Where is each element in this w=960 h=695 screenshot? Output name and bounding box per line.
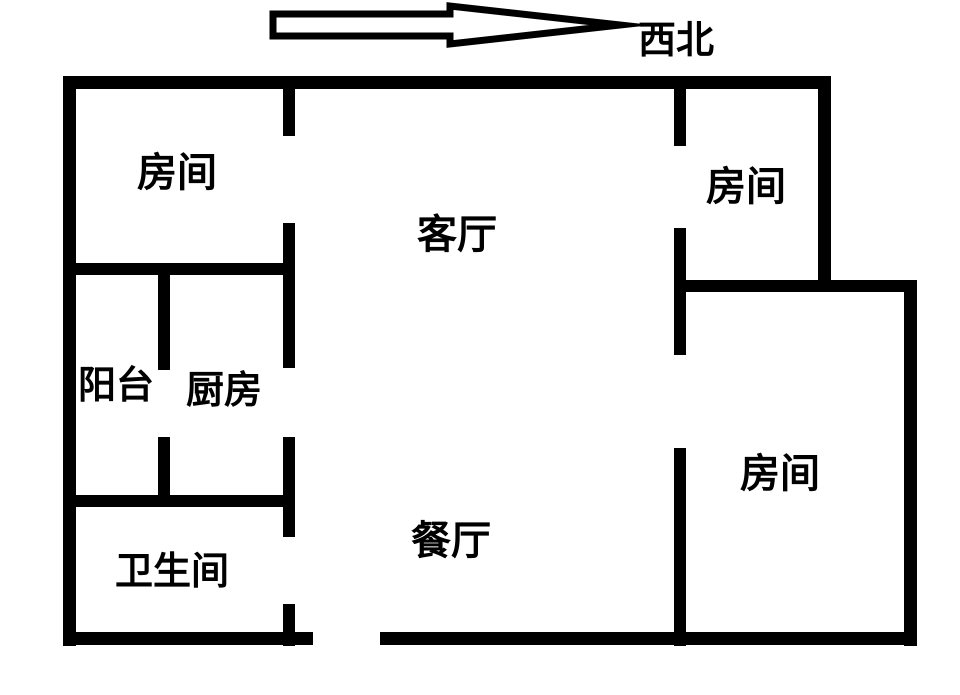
wall-outer-bottom-left xyxy=(63,632,313,645)
wall-right-step-connector xyxy=(674,280,917,292)
wall-balcony-kitchen-seg2 xyxy=(158,437,170,507)
wall-center-left-seg4 xyxy=(283,604,295,646)
wall-outer-bottom-right xyxy=(380,632,917,645)
wall-bedroom1-bottom xyxy=(63,263,295,275)
wall-outer-left xyxy=(63,76,76,646)
room-label-bedroom-top-left: 房间 xyxy=(137,153,217,193)
room-label-bedroom-top-right: 房间 xyxy=(706,167,786,207)
wall-center-right-seg2 xyxy=(674,228,686,355)
room-label-bedroom-bottom-right: 房间 xyxy=(740,454,820,494)
wall-center-right-seg3 xyxy=(674,448,686,646)
wall-center-right-seg1 xyxy=(674,76,686,146)
room-label-balcony: 阳台 xyxy=(78,367,154,405)
wall-balcony-kitchen-seg1 xyxy=(158,263,170,370)
wall-center-left-seg2 xyxy=(283,223,295,368)
wall-center-left-seg3 xyxy=(283,437,295,537)
floor-plan: 西北 房间 客厅 房间 阳台 厨房 卫生间 餐厅 房间 xyxy=(0,0,960,695)
compass-label: 西北 xyxy=(638,22,714,60)
room-label-bathroom: 卫生间 xyxy=(115,553,229,591)
wall-outer-right-lower xyxy=(904,280,917,646)
wall-center-left-seg1 xyxy=(283,76,295,136)
wall-bathroom-top xyxy=(63,495,295,507)
wall-outer-right-upper xyxy=(818,76,831,292)
wall-outer-top xyxy=(63,76,831,89)
room-label-kitchen: 厨房 xyxy=(186,372,262,410)
room-label-living-room: 客厅 xyxy=(417,215,497,255)
room-label-dining-room: 餐厅 xyxy=(411,521,491,561)
northwest-arrow-icon xyxy=(0,0,960,70)
